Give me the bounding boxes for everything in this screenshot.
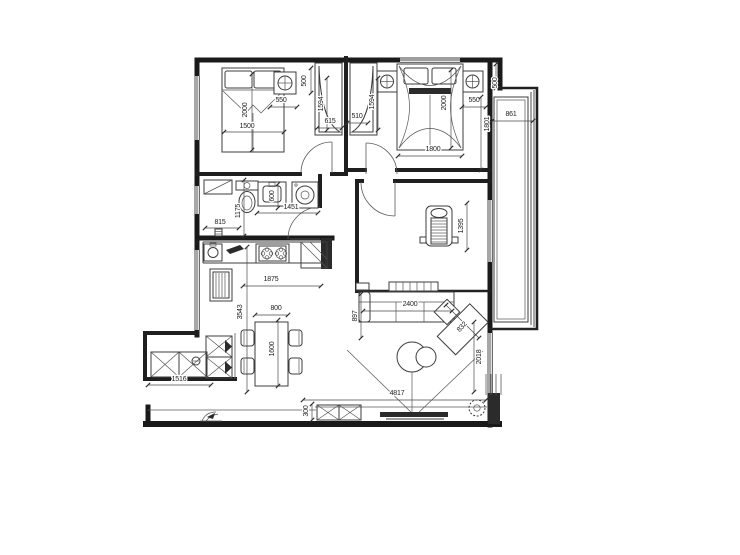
svg-text:1800: 1800 [426,146,441,153]
dimension: 4817 [301,390,488,402]
study [356,206,458,291]
bottom-strip [148,410,316,421]
svg-text:300: 300 [303,405,310,416]
tv-icon [380,412,448,419]
svg-text:2018: 2018 [476,349,483,364]
svg-text:1175: 1175 [235,204,242,219]
dimension: 1875 [241,276,323,288]
door-study [361,182,395,216]
chair-icon [241,330,254,346]
door-bathroom [288,207,320,239]
svg-text:1395: 1395 [458,218,465,233]
svg-text:2000: 2000 [441,95,448,110]
balcony-wall [145,333,235,379]
svg-text:2400: 2400 [403,301,418,308]
svg-text:897: 897 [352,310,359,321]
canopy-bed-icon [397,64,463,150]
faucet-icon [226,245,244,254]
nightstand-icon [377,71,397,92]
chair-icon [289,358,302,374]
armchair-icon [420,206,458,246]
svg-text:1594: 1594 [318,96,325,111]
chair-icon [241,358,254,374]
kitchen [203,242,327,301]
svg-text:1451: 1451 [284,204,299,211]
svg-text:550: 550 [275,97,286,104]
svg-text:1500: 1500 [240,123,255,130]
shelf-icon [356,283,369,290]
refrigerator-icon [210,269,232,301]
floor-drain-icon [215,229,222,236]
svg-text:800: 800 [270,305,281,312]
desk-icon [356,282,438,291]
dimension: 1395 [458,201,469,252]
kitchen-sink-icon [204,243,222,261]
svg-text:510: 510 [351,113,362,120]
balcony-right [490,88,537,329]
ac-unit-icon [274,72,296,94]
svg-text:4817: 4817 [390,390,405,397]
bathroom [204,180,318,236]
plant-icon [200,412,222,421]
svg-text:1594: 1594 [369,94,376,109]
svg-text:3543: 3543 [237,304,244,319]
dimension: 815 [203,219,241,230]
floor-plan-canvas: 2000150055050015946155101594200018005501… [0,0,740,555]
dimension: 300 [303,402,314,422]
svg-text:2000: 2000 [242,102,249,117]
svg-text:1801: 1801 [484,116,491,131]
balcony-window-frame [497,100,525,319]
svg-text:500: 500 [492,77,499,88]
laundry-balcony [151,336,232,378]
nightstand-icon [462,71,483,92]
coffee-table-icon [397,342,436,372]
bath-cabinet-icon [204,180,232,194]
dimension: 500 [301,66,313,95]
svg-text:861: 861 [505,111,516,118]
wall-column [488,393,500,424]
door-bedroom-right [366,143,397,174]
balcony-window-frame [494,97,528,322]
dimension: 550 [460,97,488,109]
floor-drain-icon [192,357,200,365]
svg-text:1875: 1875 [264,276,279,283]
door-bedroom-left [301,142,332,173]
dimension: 800 [253,305,290,317]
chair-icon [289,330,302,346]
stove-icon [256,244,289,263]
svg-text:600: 600 [269,190,276,201]
svg-text:815: 815 [214,219,225,226]
fan-icon [469,400,485,416]
svg-text:1600: 1600 [269,341,276,356]
svg-text:500: 500 [301,75,308,86]
svg-text:1516: 1516 [172,376,187,383]
svg-text:615: 615 [324,118,335,125]
floor-plan-page: 2000150055050015946155101594200018005501… [0,0,740,555]
svg-text:550: 550 [468,97,479,104]
